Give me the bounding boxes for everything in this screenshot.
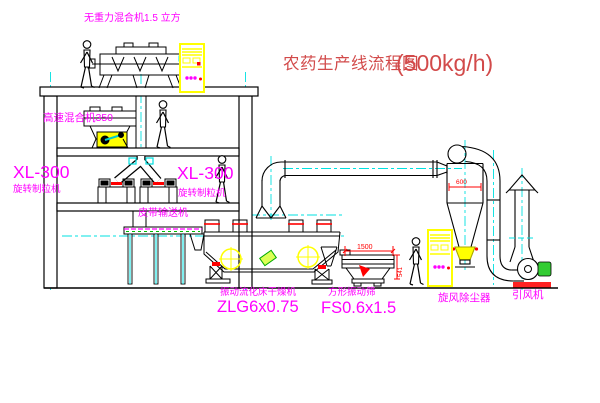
gravity-mixer-label: 无重力混合机1.5 立方	[84, 11, 181, 24]
dim-screen-length: 1500	[357, 244, 373, 251]
granulator-right-name: 旋转制粒机	[178, 187, 226, 199]
fan-label: 引风机	[512, 288, 544, 301]
granulator-left-name: 旋转制粒机	[13, 183, 61, 195]
person-figure	[410, 238, 424, 285]
dryer-name-label: 振动流化床干燥机	[220, 286, 297, 298]
granulator-right-model: XL-300	[177, 163, 234, 183]
screen-name-label: 方形振动筛	[328, 286, 376, 298]
granulator-left-drawing	[98, 179, 135, 203]
granulator-right-drawing	[140, 179, 177, 203]
control-cabinet-cyclone	[428, 230, 452, 286]
screen-model-label: FS0.6x1.5	[321, 299, 396, 317]
fluid-bed-dryer-drawing	[190, 220, 340, 284]
drawing-title: 农药生产线流程图 (500kg/h)	[283, 50, 493, 76]
dim-cyclone-diameter: 600	[456, 179, 467, 186]
induced-draft-fan-drawing	[513, 259, 551, 289]
person-figure	[157, 101, 171, 148]
dim-screen-height: 541	[398, 266, 404, 277]
dryer-model-label: ZLG6x0.75	[217, 298, 299, 316]
y-chute	[117, 156, 158, 181]
control-cabinet-top	[180, 44, 204, 92]
granulator-left-model: XL-300	[13, 162, 70, 182]
vibrating-screen-drawing	[342, 255, 394, 286]
belt-conveyor-label: 皮带输送机	[138, 206, 188, 219]
process-flow-drawing: 1500 541 600 无重力混合机1.5 立方 高速混合机350 XL-30…	[0, 0, 600, 403]
cyclone-drawing	[447, 145, 524, 281]
high-speed-mixer-label: 高速混合机350	[43, 111, 113, 124]
cyclone-label: 旋风除尘器	[438, 291, 491, 304]
title-capacity: (500kg/h)	[396, 50, 493, 76]
cad-flow-diagram: 1500 541 600 无重力混合机1.5 立方 高速混合机350 XL-30…	[0, 0, 600, 403]
